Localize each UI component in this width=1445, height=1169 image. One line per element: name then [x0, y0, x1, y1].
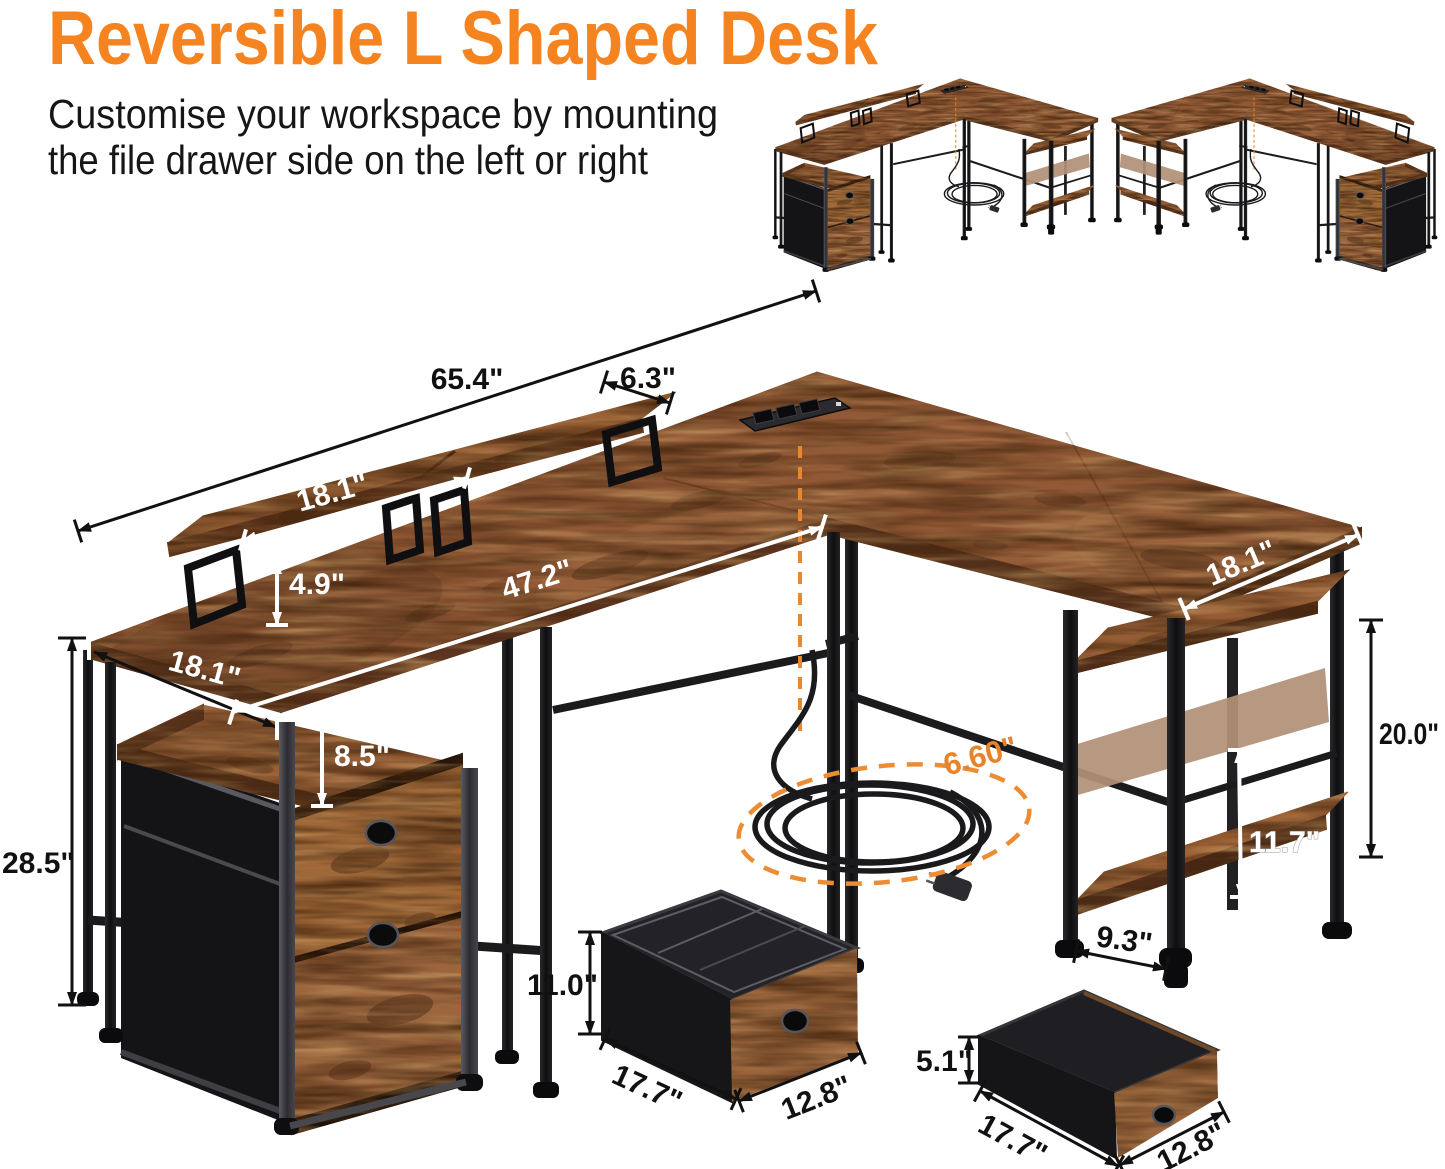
svg-text:11.0": 11.0": [527, 969, 598, 1002]
svg-text:6.60": 6.60": [940, 729, 1022, 782]
svg-text:28.5": 28.5": [2, 847, 75, 880]
svg-text:6.3": 6.3": [620, 362, 676, 395]
svg-text:65.4": 65.4": [431, 363, 504, 396]
svg-text:11.7": 11.7": [1249, 826, 1320, 859]
svg-text:Customise your workspace by mo: Customise your workspace by mounting: [48, 91, 718, 137]
svg-text:4.9": 4.9": [289, 568, 345, 601]
svg-text:5.1": 5.1": [916, 1045, 972, 1078]
svg-text:20.0": 20.0": [1379, 718, 1439, 751]
svg-text:9.3": 9.3": [1094, 920, 1154, 960]
svg-text:8.5": 8.5": [334, 740, 390, 773]
svg-text:the file drawer side on the le: the file drawer side on the left or righ…: [48, 137, 649, 183]
svg-text:Reversible L Shaped Desk: Reversible L Shaped Desk: [48, 0, 879, 81]
